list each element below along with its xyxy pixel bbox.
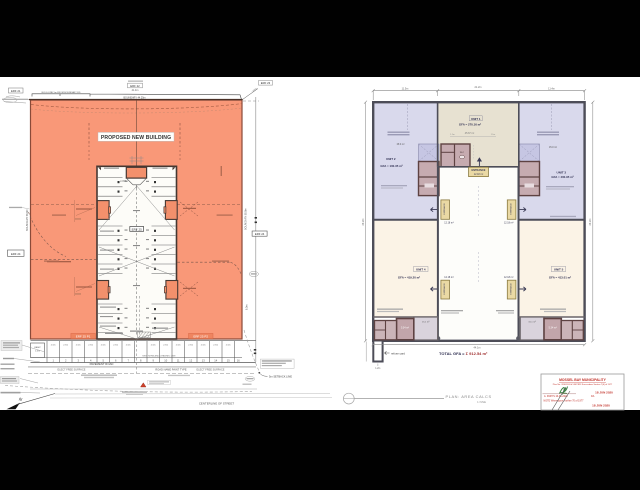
svg-text:2.5m: 2.5m (151, 345, 156, 347)
svg-text:2.5m: 2.5m (63, 345, 68, 347)
svg-text:MOSSEL BAY MUNICIPALITY: MOSSEL BAY MUNICIPALITY (559, 378, 607, 382)
svg-text:ERF 24: ERF 24 (11, 252, 21, 256)
svg-text:ERF 21: ERF 21 (11, 89, 21, 93)
svg-text:2.5m: 2.5m (201, 345, 206, 347)
svg-text:2.5m: 2.5m (213, 345, 218, 347)
svg-text:ROAD NAME PAINT TYPE: ROAD NAME PAINT TYPE (155, 367, 187, 371)
svg-text:ENTRANCE: ENTRANCE (510, 202, 513, 214)
svg-text:W.C: W.C (460, 152, 465, 154)
svg-text:12: 12 (189, 358, 192, 362)
svg-text:A. PARYS 16-06-2020: A. PARYS 16-06-2020 (544, 395, 568, 398)
svg-text:10: 10 (164, 358, 167, 362)
svg-text:CENTERLINE OF STREET: CENTERLINE OF STREET (199, 402, 235, 406)
svg-text:UNIT 5: UNIT 5 (554, 268, 564, 272)
svg-text:2.5m: 2.5m (101, 345, 106, 347)
svg-text:7: 7 (127, 358, 129, 362)
svg-text:8.0m: 8.0m (246, 305, 249, 310)
svg-text:2.5m: 2.5m (176, 345, 181, 347)
svg-text:5.34 m²: 5.34 m² (401, 327, 409, 330)
svg-text:6: 6 (115, 358, 117, 362)
svg-text:8: 8 (140, 358, 142, 362)
svg-text:21.2m: 21.2m (475, 86, 482, 89)
svg-text:ERF 25 P2: ERF 25 P2 (193, 335, 208, 339)
svg-text:2.5m: 2.5m (76, 345, 81, 347)
svg-text:DA: DA (591, 395, 595, 398)
svg-text:12.18 m²: 12.18 m² (504, 222, 514, 225)
svg-text:BLDG LINE 5m FROM BOUNDARY RD: BLDG LINE 5m FROM BOUNDARY RD (42, 91, 81, 94)
svg-text:1:NNE: 1:NNE (477, 400, 486, 404)
svg-text:45.67 m²: 45.67 m² (465, 132, 475, 135)
svg-text:29.2m: 29.2m (362, 219, 365, 226)
svg-text:18 JUN 2020: 18 JUN 2020 (595, 390, 613, 394)
svg-text:BOUNDARY 58.8m: BOUNDARY 58.8m (26, 209, 29, 231)
svg-text:GFA = 270.16 m²: GFA = 270.16 m² (459, 122, 481, 126)
svg-text:12.18 m²: 12.18 m² (444, 276, 454, 279)
svg-text:5m SETBACK LINE: 5m SETBACK LINE (269, 375, 292, 379)
svg-text:13: 13 (202, 358, 205, 362)
svg-text:TOTAL GFA = Σ 912.54 m²: TOTAL GFA = Σ 912.54 m² (439, 351, 488, 356)
svg-text:ERF 22: ERF 22 (130, 84, 140, 88)
svg-text:ENTRANCE: ENTRANCE (510, 282, 513, 294)
svg-text:4.5m: 4.5m (35, 351, 40, 353)
svg-text:BOUNDARY 44.25m: BOUNDARY 44.25m (123, 97, 145, 100)
svg-text:3: 3 (77, 358, 79, 362)
svg-text:ERF 24: ERF 24 (255, 232, 265, 236)
svg-text:18 JUN 2020: 18 JUN 2020 (592, 404, 610, 408)
svg-text:Plan No. 2630/20 Erf 5967/853: Plan No. 2630/20 Erf 5967/853 Succendum … (553, 383, 613, 386)
svg-text:11.5m: 11.5m (402, 87, 409, 90)
svg-text:1.2m: 1.2m (375, 368, 380, 370)
svg-text:9: 9 (152, 358, 154, 362)
svg-text:PROPOSED NEW BUILDING: PROPOSED NEW BUILDING (101, 135, 171, 141)
svg-text:14: 14 (214, 358, 217, 362)
svg-text:ENTRANCE: ENTRANCE (443, 282, 446, 294)
svg-text:2.5m: 2.5m (113, 345, 118, 347)
svg-text:2.5m: 2.5m (188, 345, 193, 347)
svg-text:29.2m: 29.2m (589, 219, 592, 226)
svg-text:RAMP: RAMP (34, 346, 41, 349)
svg-text:2.5m: 2.5m (88, 345, 93, 347)
svg-text:NEW KERB AND CHANNEL LINE: NEW KERB AND CHANNEL LINE (142, 354, 176, 357)
svg-text:5.34 m²: 5.34 m² (549, 327, 557, 330)
svg-text:1.1m: 1.1m (450, 134, 455, 136)
svg-text:41.4m: 41.4m (132, 89, 139, 92)
svg-text:N: N (18, 396, 23, 402)
svg-text:2.5m: 2.5m (163, 345, 168, 347)
svg-text:GFA = 100.35 m²: GFA = 100.35 m² (380, 164, 402, 168)
svg-text:ELECT FREE SURFACE: ELECT FREE SURFACE (197, 369, 225, 372)
svg-text:ENTRANCE: ENTRANCE (472, 169, 486, 172)
svg-text:UNIT 3: UNIT 3 (557, 171, 567, 175)
svg-text:11: 11 (177, 358, 180, 362)
svg-text:1.1m: 1.1m (491, 134, 496, 136)
svg-text:ELECT FREE SURFACE: ELECT FREE SURFACE (58, 369, 86, 372)
svg-text:GFA = 419.20 m²: GFA = 419.20 m² (398, 275, 420, 279)
svg-text:UNIT 4: UNIT 4 (416, 268, 426, 272)
svg-text:16: 16 (237, 358, 240, 362)
svg-text:15.0 m²: 15.0 m² (396, 143, 404, 146)
svg-text:12.18 m²: 12.18 m² (504, 276, 514, 279)
svg-text:ERF 23: ERF 23 (261, 81, 271, 85)
svg-text:UNIT 2: UNIT 2 (386, 157, 396, 161)
svg-text:15.1 m²: 15.1 m² (422, 321, 430, 324)
svg-text:15.1 m²: 15.1 m² (528, 321, 536, 324)
svg-text:2.5m: 2.5m (126, 345, 131, 347)
svg-text:GFA = 413.01 m²: GFA = 413.01 m² (549, 275, 571, 279)
svg-text:1: 1 (52, 358, 54, 362)
svg-text:PAVEMENT ROAD: PAVEMENT ROAD (90, 362, 114, 366)
svg-text:12.18 m²: 12.18 m² (444, 222, 454, 225)
svg-text:15: 15 (227, 358, 230, 362)
svg-text:12.18 m²: 12.18 m² (474, 173, 484, 176)
svg-text:refuse yard: refuse yard (391, 351, 405, 355)
svg-text:PLAN: AREA CALCS: PLAN: AREA CALCS (446, 394, 492, 399)
svg-text:ERF 25 P1: ERF 25 P1 (76, 335, 91, 339)
svg-text:GFA = 400.95 m²: GFA = 400.95 m² (551, 175, 573, 179)
svg-text:11.4m: 11.4m (548, 87, 555, 90)
svg-text:UNIT 1: UNIT 1 (471, 117, 481, 121)
svg-text:2.5m: 2.5m (226, 345, 231, 347)
svg-text:BOUNDARY 58.8m: BOUNDARY 58.8m (244, 208, 247, 230)
svg-text:2: 2 (65, 358, 67, 362)
svg-text:ENTRANCE: ENTRANCE (443, 202, 446, 214)
svg-text:2.5m: 2.5m (51, 345, 56, 347)
svg-text:15.0 m²: 15.0 m² (549, 146, 557, 149)
svg-text:44.1m: 44.1m (474, 346, 481, 349)
